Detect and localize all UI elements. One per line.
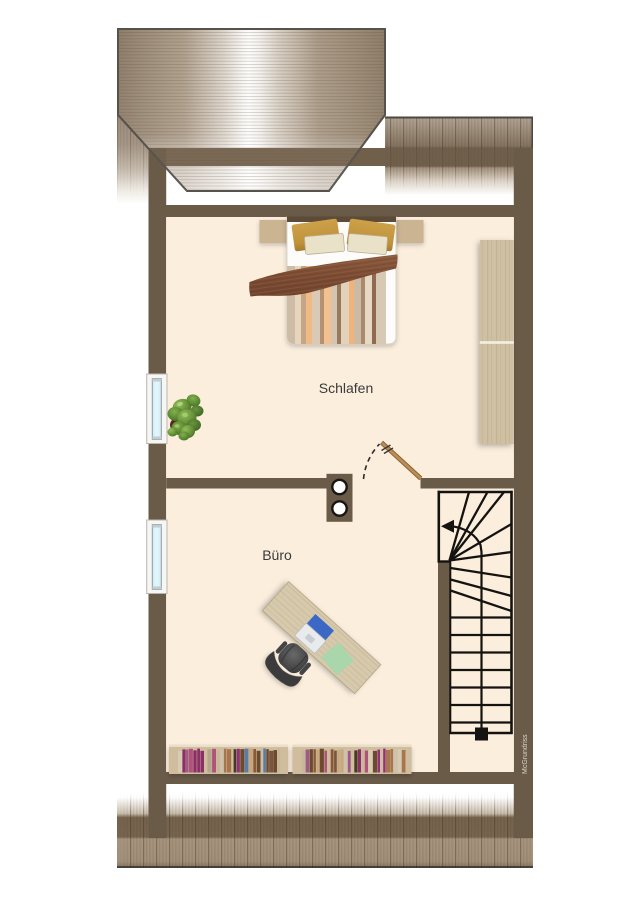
svg-text:McGrundriss: McGrundriss (522, 734, 529, 774)
svg-text:Schlafen: Schlafen (319, 380, 373, 396)
svg-text:Büro: Büro (262, 547, 292, 563)
